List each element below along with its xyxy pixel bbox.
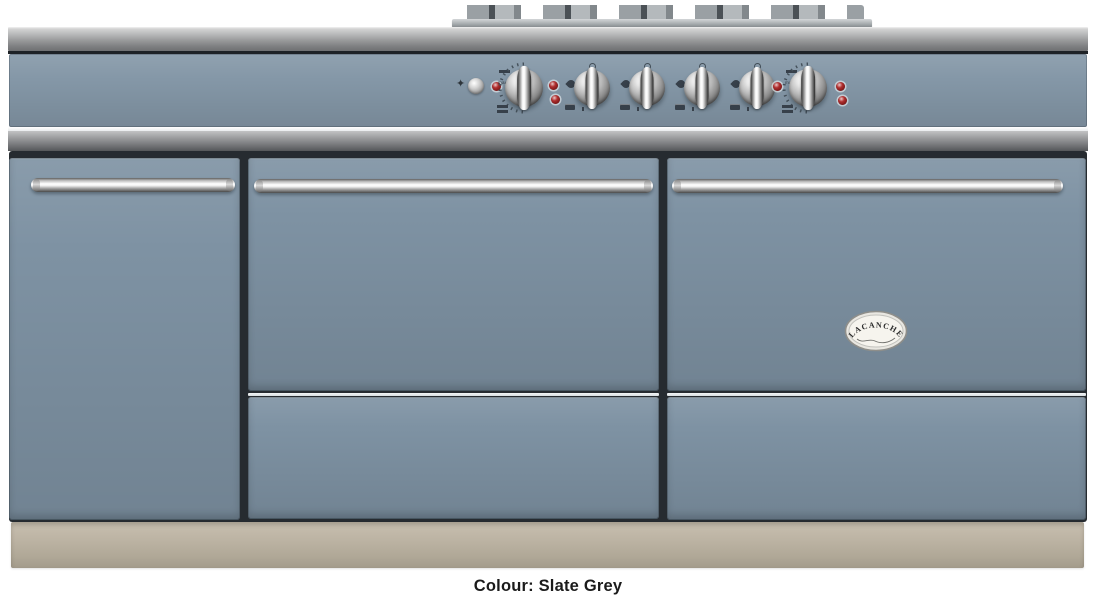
- knob-min-mark: [582, 107, 584, 111]
- base-top-trim: [8, 131, 1088, 151]
- caption: Colour: Slate Grey: [0, 577, 1096, 596]
- lacanche-badge: LACANCHE: [844, 310, 908, 352]
- knob-min-mark: [692, 107, 694, 111]
- burner-position-icon: [565, 104, 575, 110]
- knob-min-mark: [637, 107, 639, 111]
- burner-knob-3: [684, 70, 720, 106]
- plinth: [11, 522, 1084, 568]
- right-drawer-front: [667, 397, 1086, 520]
- oven-knob-right: [789, 69, 827, 107]
- oven-indicator-light: [551, 95, 560, 104]
- drawer-gap-highlight: [667, 393, 1086, 396]
- oven-indicator-light: [836, 82, 845, 91]
- ignition-spark-icon: ✦: [456, 79, 465, 90]
- range-cooker-product-image: ✦ maxi: [0, 0, 1096, 606]
- caption-text: Colour: Slate Grey: [474, 577, 622, 595]
- oven-indicator-light: [549, 81, 558, 90]
- right-oven-door: LACANCHE: [667, 158, 1086, 391]
- hob-front-trim: [8, 27, 1088, 51]
- middle-oven-handle: [254, 179, 653, 193]
- ignition-button: [468, 78, 484, 94]
- oven-body: LACANCHE: [9, 151, 1087, 522]
- right-oven-handle: [672, 179, 1063, 193]
- knob-min-mark: [747, 107, 749, 111]
- oven-knob-left: [505, 69, 543, 107]
- left-tall-door: [9, 158, 240, 520]
- oven-element-icon: [782, 105, 793, 113]
- burner-knob-2: [629, 70, 665, 106]
- middle-oven-door: [248, 158, 659, 391]
- left-door-handle: [31, 178, 235, 192]
- control-panel: ✦ maxi: [9, 54, 1087, 127]
- drawer-gap-highlight: [248, 393, 659, 396]
- burner-position-icon: [620, 104, 630, 110]
- burner-knob-1: [574, 70, 610, 106]
- burner-position-icon: [730, 104, 740, 110]
- middle-drawer-front: [248, 397, 659, 519]
- burner-knob-4: [739, 70, 775, 106]
- oven-element-icon: [497, 105, 508, 113]
- oven-indicator-light: [838, 96, 847, 105]
- burner-position-icon: [675, 104, 685, 110]
